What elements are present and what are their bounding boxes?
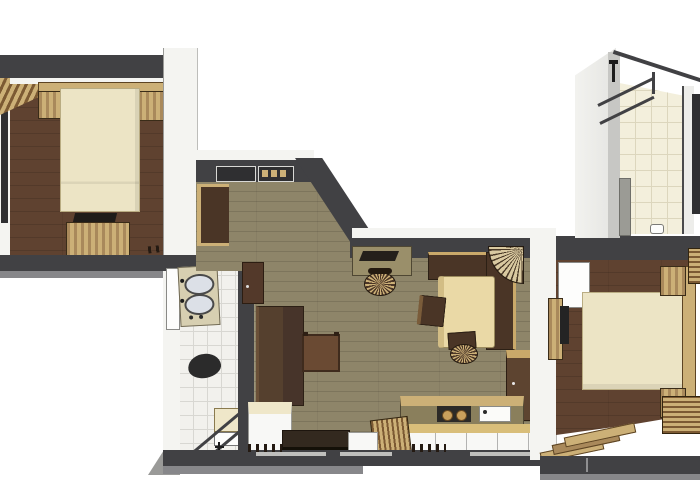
shower2-head-icon bbox=[609, 60, 618, 64]
burner-2-icon bbox=[456, 410, 467, 421]
dining-chair-bottom-base bbox=[450, 344, 478, 364]
vanity-drain-dots-2 bbox=[199, 315, 203, 319]
window-sill-1 bbox=[256, 452, 326, 456]
shower2-fixture-icon bbox=[612, 64, 615, 82]
bed2-nightstand-top bbox=[660, 266, 686, 296]
ottoman-handle-right bbox=[334, 332, 339, 336]
small-white-cabinet bbox=[348, 432, 378, 452]
laptop-icon bbox=[359, 251, 399, 261]
bed2-duvet bbox=[582, 292, 690, 390]
bedroom-1 bbox=[0, 45, 200, 280]
bedroom2-bottom-wall bbox=[540, 456, 700, 474]
radiator-hatch-2 bbox=[412, 444, 446, 452]
bathroom2-wall-unit bbox=[692, 94, 700, 214]
floor-plan-scene bbox=[0, 0, 700, 500]
bathroom2-floor-fixture bbox=[650, 224, 664, 234]
bedroom2-bottom-wall-joint bbox=[586, 458, 588, 472]
niche-item-3 bbox=[280, 170, 286, 177]
bed1-dresser bbox=[66, 222, 130, 256]
bedroom1-right-wall bbox=[163, 48, 198, 270]
hallway-shelf bbox=[197, 184, 229, 246]
window-sill-2 bbox=[340, 452, 392, 456]
sink-basin-1 bbox=[184, 273, 215, 296]
dining-chair-left bbox=[417, 295, 447, 328]
bed1-nightstand-right bbox=[138, 91, 166, 121]
ottoman-handle-left bbox=[303, 332, 308, 336]
bedroom2-bottom-wall-face bbox=[540, 474, 700, 480]
niche-item-2 bbox=[271, 170, 277, 177]
hallway-ottoman bbox=[302, 334, 340, 372]
bedroom2-tv-icon bbox=[560, 306, 569, 344]
bathroom-2 bbox=[570, 44, 700, 240]
side-cabinet-knob-icon bbox=[512, 382, 515, 385]
window-sill-3 bbox=[470, 452, 530, 456]
desk-chair-back bbox=[368, 268, 392, 274]
burner-1-icon bbox=[442, 410, 453, 421]
niche-item-1 bbox=[262, 170, 268, 177]
hallway-niche-1 bbox=[216, 166, 256, 182]
main-bottom-wall-face bbox=[163, 466, 363, 474]
bed1-tv-icon bbox=[73, 213, 117, 222]
bed1-duvet bbox=[60, 88, 140, 212]
bedroom2-radiator-top bbox=[688, 248, 700, 284]
desk-chair bbox=[364, 272, 396, 296]
radiator-hatch-1 bbox=[248, 444, 282, 452]
kitchen-sink bbox=[479, 406, 511, 422]
tv-bench bbox=[282, 430, 350, 450]
bathroom2-top-wall-line bbox=[613, 50, 700, 82]
hallway-wardrobe bbox=[256, 306, 304, 406]
cabinet-knob-icon bbox=[246, 285, 249, 288]
vanity-drain-dots bbox=[189, 315, 193, 319]
hallway-wall-cabinet bbox=[242, 262, 264, 304]
kitchen-faucet-icon bbox=[483, 410, 487, 414]
bedroom1-top-wall bbox=[0, 55, 166, 78]
bedroom2-radiator-bottom bbox=[662, 396, 700, 434]
bedroom1-window bbox=[1, 107, 8, 223]
hallway-niche-2 bbox=[258, 166, 294, 182]
sink-basin-2 bbox=[184, 293, 215, 316]
bathroom1-vanity bbox=[177, 265, 220, 327]
shower2-glass-edge bbox=[652, 72, 655, 94]
cooktop bbox=[437, 406, 471, 422]
shower-faucet-handle-icon bbox=[215, 446, 224, 448]
bathroom2-gray-cabinet bbox=[619, 178, 631, 236]
